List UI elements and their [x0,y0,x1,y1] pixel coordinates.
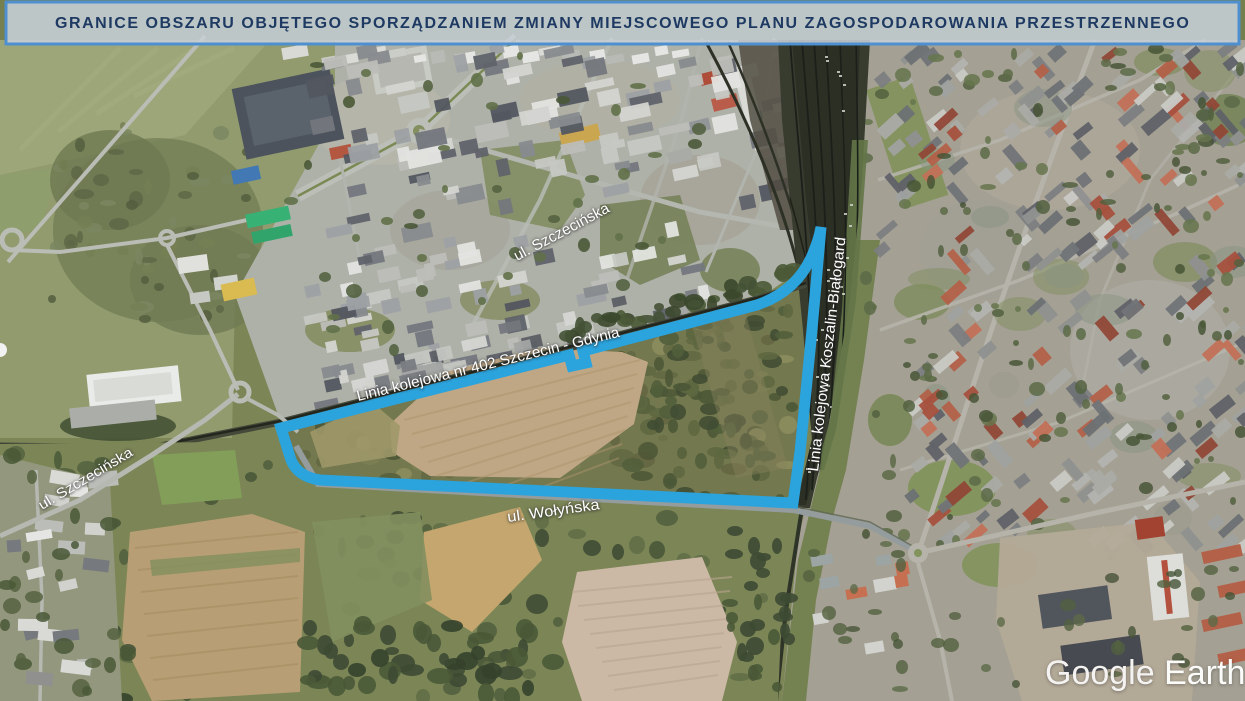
svg-text:GRANICE OBSZARU OBJĘTEGO SPORZ: GRANICE OBSZARU OBJĘTEGO SPORZĄDZANIEM Z… [55,15,1190,32]
svg-text:Google Earth: Google Earth [1045,654,1245,692]
